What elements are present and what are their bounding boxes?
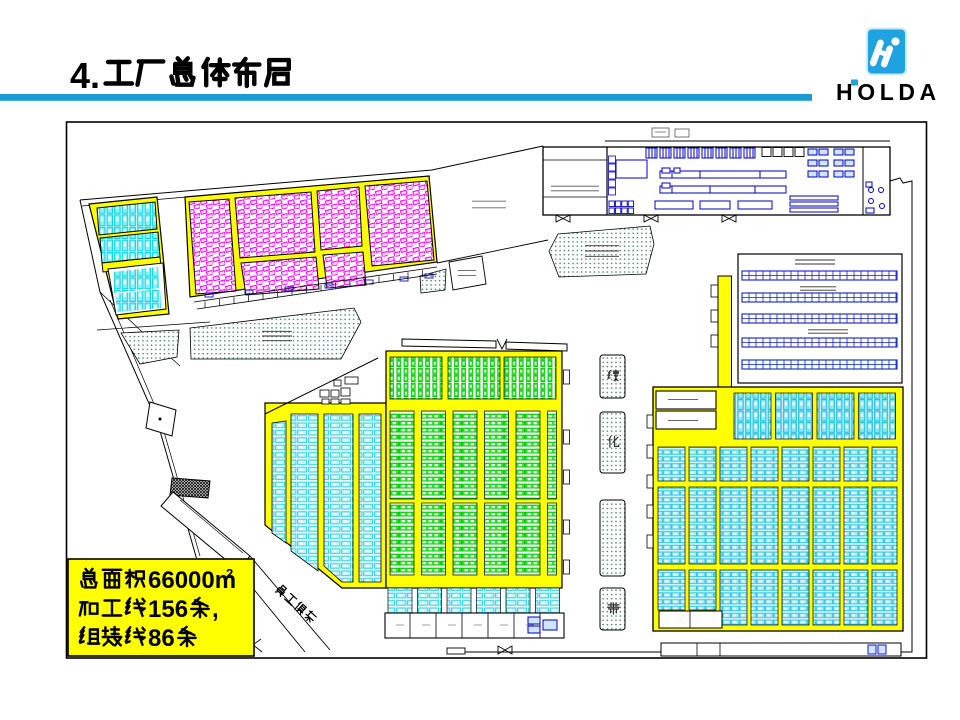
svg-text:2: 2 xyxy=(226,566,233,581)
svg-text:66000m: 66000m xyxy=(148,567,236,594)
svg-text:,: , xyxy=(212,596,219,623)
svg-text:86: 86 xyxy=(148,625,175,652)
svg-text:156: 156 xyxy=(148,596,188,623)
svg-text:4.: 4. xyxy=(70,55,100,96)
